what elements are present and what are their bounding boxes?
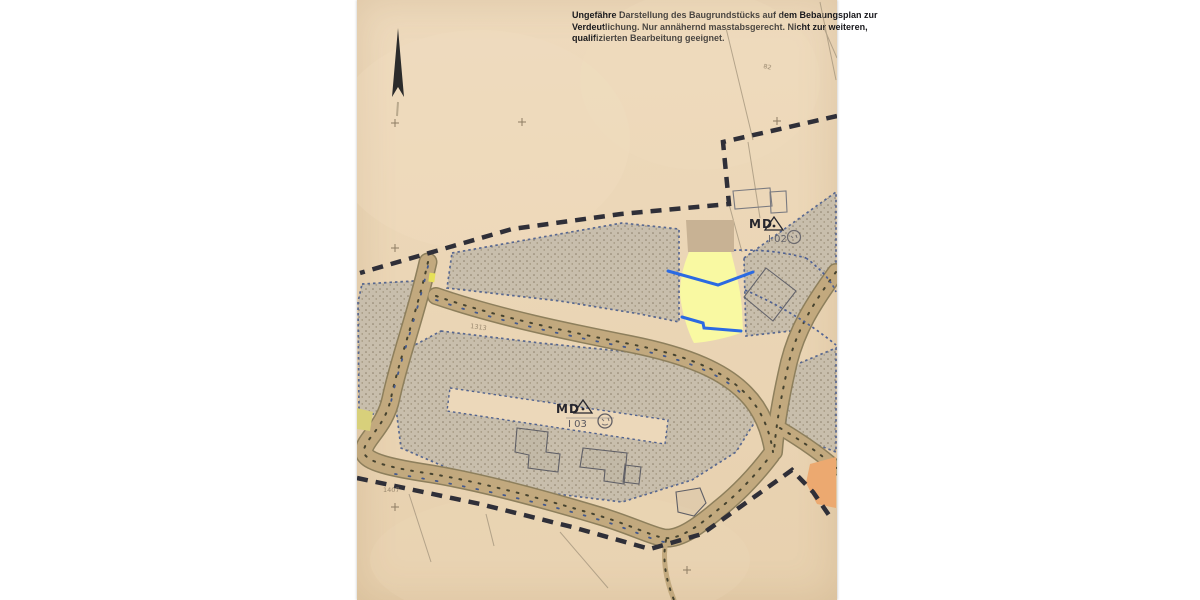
parcel-number-82: 82 bbox=[763, 62, 773, 72]
zone-lower-ref: I 03 bbox=[568, 419, 587, 430]
bebauungsplan-drawing: MD I 02 MD I 03 1407 1313 8 bbox=[357, 0, 837, 600]
road-marker-dot bbox=[428, 273, 435, 283]
map-scan: Ungefähre Darstellung des Baugrundstücks… bbox=[357, 0, 837, 600]
zone-upper-ref: I 02 bbox=[768, 234, 787, 245]
screenshot-stage: Ungefähre Darstellung des Baugrundstücks… bbox=[0, 0, 1200, 600]
masked-area bbox=[686, 220, 734, 252]
parcel-number-1313: 1313 bbox=[470, 322, 487, 332]
orange-parcel bbox=[806, 457, 836, 508]
parcel-block-east bbox=[744, 192, 836, 336]
parcel-number-1407: 1407 bbox=[383, 486, 400, 494]
